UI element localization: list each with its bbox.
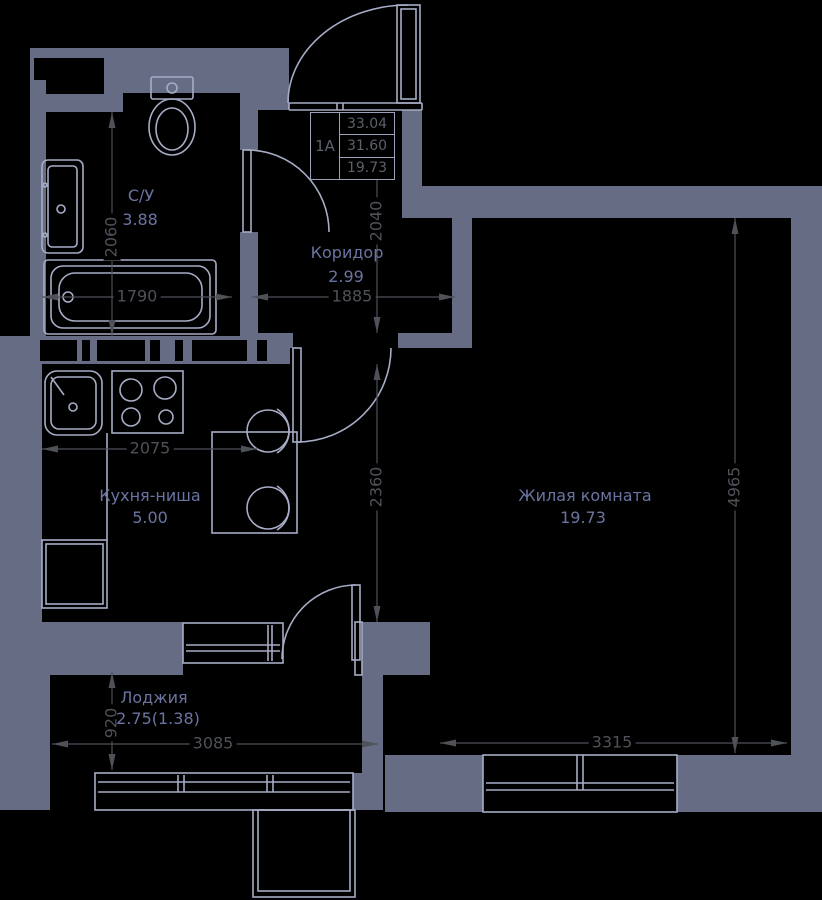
unit-number: 1А	[311, 113, 340, 179]
toilet-icon	[149, 77, 195, 155]
stove-icon	[112, 371, 183, 433]
unit-info-box: 1А 33.04 31.60 19.73	[310, 112, 395, 180]
dim-kitchen-width: 2075	[127, 441, 174, 458]
kitchen-door-icon	[293, 348, 391, 442]
unit-area-total: 33.04	[340, 113, 394, 134]
room-name-living: Жилая комната	[518, 487, 651, 505]
room-area-bathroom: 3.88	[122, 211, 158, 229]
plan-linework	[0, 0, 822, 900]
room-name-bathroom: С/У	[128, 187, 154, 205]
room-area-loggia: 2.75(1.38)	[116, 710, 200, 728]
fridge-icon	[42, 540, 107, 608]
floor-plan: 2060 1790 1885 2040 2360 2075 4965 920 3…	[0, 0, 822, 900]
dim-bath-width: 1790	[114, 289, 161, 306]
sink-icon	[45, 371, 102, 435]
dim-bath-height: 2060	[104, 214, 121, 261]
unit-area-internal: 31.60	[340, 134, 394, 156]
dim-corridor-height: 2040	[369, 198, 386, 245]
balcony-protrusion	[253, 810, 355, 897]
room-name-corridor: Коридор	[311, 244, 384, 262]
chair-icon	[247, 409, 289, 453]
entry-door-icon	[288, 5, 420, 103]
room-name-loggia: Лоджия	[120, 689, 187, 707]
dim-living-height: 4965	[727, 464, 744, 511]
dim-loggia-width: 3085	[190, 736, 237, 753]
radiator-icon	[42, 160, 83, 253]
dim-corridor-width: 1885	[329, 289, 376, 306]
dim-kitchen-zone-height: 2360	[369, 464, 386, 511]
loggia-window-icon	[95, 773, 353, 810]
entry-threshold	[289, 103, 422, 110]
room-area-kitchen: 5.00	[132, 509, 168, 527]
kitchen-window-icon	[183, 623, 283, 663]
chair-icon	[247, 486, 289, 530]
balcony-door-icon	[282, 585, 362, 675]
unit-area-living: 19.73	[340, 157, 394, 179]
room-area-corridor: 2.99	[328, 268, 364, 286]
dim-living-width: 3315	[589, 735, 636, 752]
room-area-living: 19.73	[560, 509, 606, 527]
living-window-icon	[483, 755, 677, 812]
room-name-kitchen: Кухня-ниша	[99, 487, 200, 505]
